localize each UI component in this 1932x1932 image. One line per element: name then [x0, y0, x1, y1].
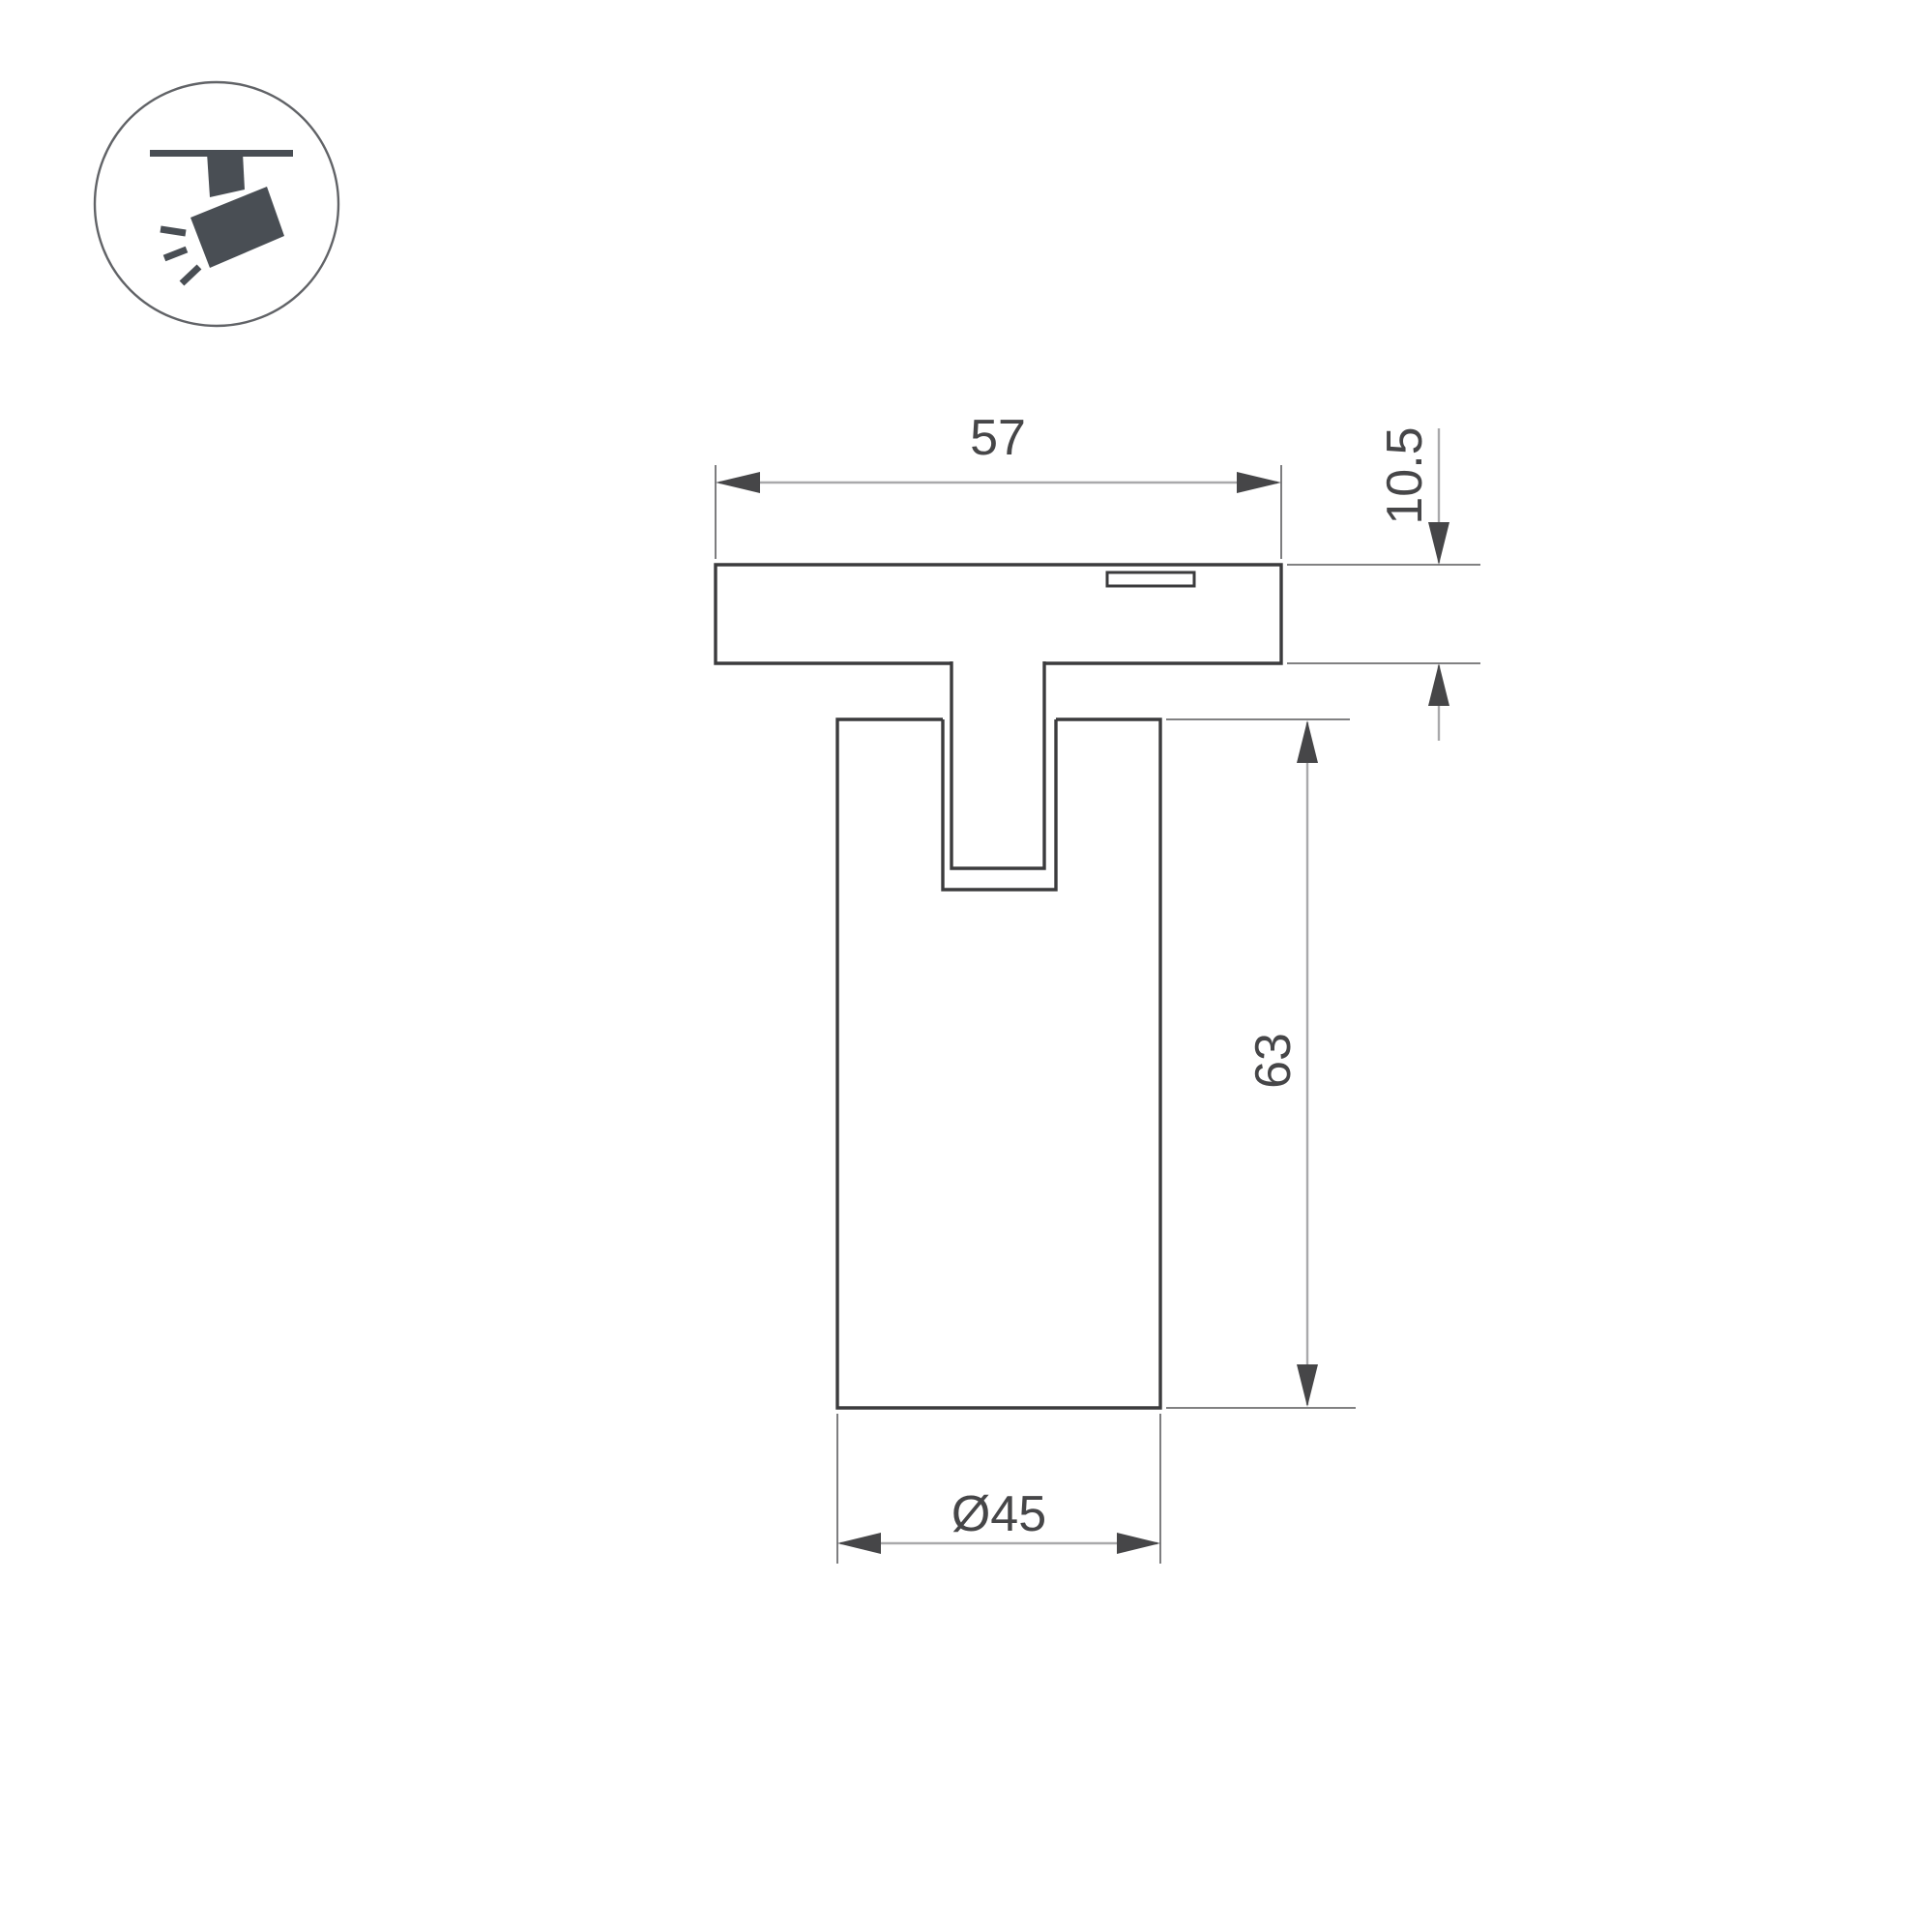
pivot-stem [951, 661, 1044, 868]
dimension-body-diameter: Ø45 [837, 1414, 1160, 1564]
dimension-drawing-canvas: 57 10.5 63 Ø45 [0, 0, 1932, 1932]
plate-slot [1107, 572, 1194, 586]
dimension-adapter-width: 57 [716, 410, 1281, 559]
dimension-body-height: 63 [1166, 719, 1356, 1408]
icon-mount-stem [207, 153, 245, 197]
drawing-page: 57 10.5 63 Ø45 [0, 0, 1932, 1932]
dim-label-adapter-width: 57 [970, 410, 1026, 466]
arrow-down-icon [1297, 1364, 1318, 1407]
arrow-right-icon [1237, 472, 1281, 493]
arrow-left-icon [837, 1533, 881, 1554]
arrow-down-icon [1428, 522, 1449, 565]
track-adapter-plate [716, 565, 1281, 663]
arrow-left-icon [716, 472, 760, 493]
track-spotlight-icon [95, 82, 338, 326]
arrow-up-icon [1297, 720, 1318, 763]
dimension-adapter-thickness: 10.5 [1287, 426, 1480, 741]
arrow-up-icon [1428, 663, 1449, 706]
light-ray-icon [161, 229, 186, 233]
dim-label-body-diameter: Ø45 [951, 1486, 1046, 1542]
dim-label-adapter-thickness: 10.5 [1377, 426, 1433, 524]
fixture-outline [716, 565, 1281, 1408]
arrow-right-icon [1117, 1533, 1160, 1554]
icon-circle [95, 82, 338, 326]
dim-label-body-height: 63 [1245, 1033, 1302, 1089]
